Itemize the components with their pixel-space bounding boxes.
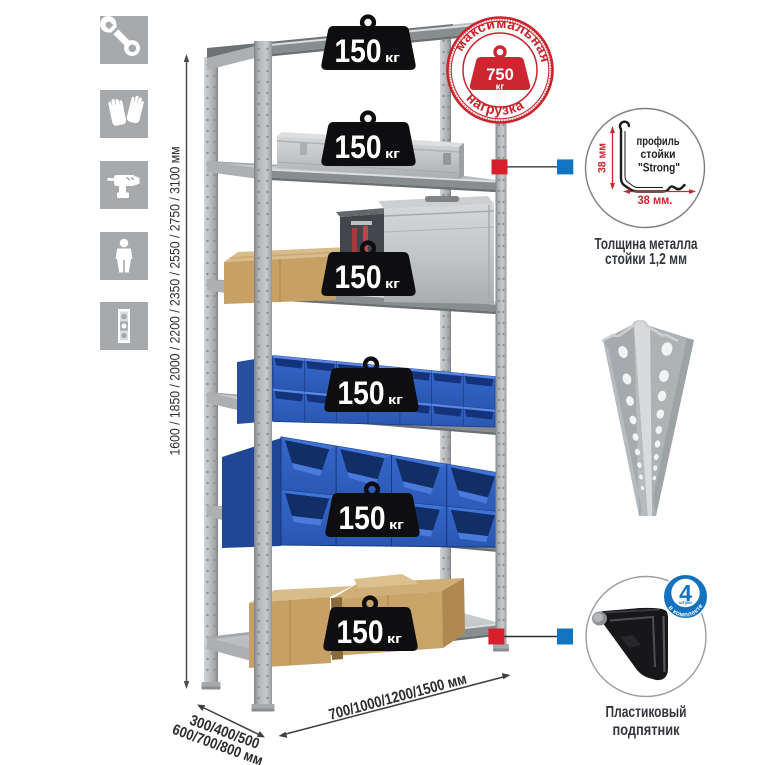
svg-text:150: 150 bbox=[335, 33, 382, 69]
svg-text:150: 150 bbox=[339, 500, 386, 536]
svg-text:стойки 1,2 мм: стойки 1,2 мм bbox=[605, 251, 687, 268]
svg-text:кг: кг bbox=[387, 631, 403, 646]
svg-text:кг: кг bbox=[385, 50, 401, 65]
svg-text:38 мм: 38 мм bbox=[597, 143, 609, 173]
svg-text:150: 150 bbox=[337, 614, 384, 650]
svg-text:150: 150 bbox=[338, 375, 385, 411]
svg-text:штуки: штуки bbox=[679, 600, 692, 605]
svg-text:1600 / 1850 / 2000 / 2200 / 23: 1600 / 1850 / 2000 / 2200 / 2350 / 2550 … bbox=[167, 147, 183, 456]
svg-text:150: 150 bbox=[335, 259, 382, 295]
svg-text:Пластиковый: Пластиковый bbox=[606, 704, 687, 721]
svg-text:кг: кг bbox=[388, 392, 404, 407]
svg-text:кг: кг bbox=[385, 146, 401, 161]
svg-text:профиль: профиль bbox=[637, 134, 680, 148]
svg-text:150: 150 bbox=[335, 129, 382, 165]
svg-text:стойки: стойки bbox=[641, 147, 676, 161]
svg-text:кг: кг bbox=[385, 276, 401, 291]
svg-text:подпятник: подпятник bbox=[613, 722, 680, 739]
svg-text:кг: кг bbox=[496, 82, 505, 93]
svg-text:"Strong": "Strong" bbox=[638, 161, 680, 175]
svg-text:38 мм.: 38 мм. bbox=[638, 195, 673, 207]
svg-text:кг: кг bbox=[389, 517, 405, 532]
